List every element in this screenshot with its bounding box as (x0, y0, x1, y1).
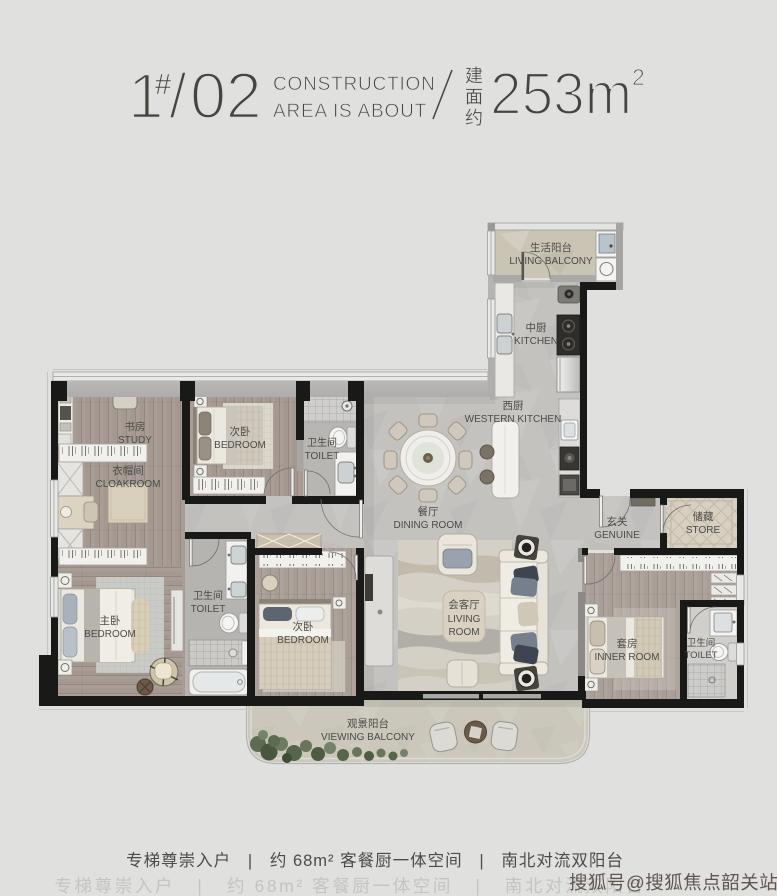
svg-text:套房: 套房 (617, 637, 638, 650)
svg-text:GENUINE: GENUINE (594, 530, 640, 541)
svg-text:ROOM: ROOM (448, 627, 479, 638)
svg-text:观景阳台: 观景阳台 (347, 717, 389, 730)
svg-text:西厨: 西厨 (503, 400, 524, 412)
svg-text:TOILET: TOILET (684, 650, 717, 661)
svg-text:WESTERN KITCHEN: WESTERN KITCHEN (465, 414, 562, 425)
svg-text:会客厅: 会客厅 (448, 598, 480, 611)
svg-text:BEDROOM: BEDROOM (214, 440, 266, 451)
svg-text:餐厅: 餐厅 (418, 505, 439, 518)
svg-text:卫生间: 卫生间 (193, 589, 223, 602)
svg-text:次卧: 次卧 (230, 425, 251, 438)
svg-text:中厨: 中厨 (526, 321, 547, 334)
svg-text:专梯尊崇入户 | 约 68m² 客餐厨一体空间: 专梯尊崇入户 | 约 68m² 客餐厨一体空间 | 南北对流双阳台 (54, 876, 645, 896)
svg-text:DINING ROOM: DINING ROOM (394, 520, 463, 531)
svg-text:BEDROOM: BEDROOM (277, 635, 329, 646)
svg-text:LIVING BALCONY: LIVING BALCONY (509, 256, 593, 267)
svg-text:面: 面 (465, 87, 483, 107)
svg-text:储藏: 储藏 (693, 510, 714, 523)
svg-text:253m: 253m (490, 61, 632, 127)
svg-text:书房: 书房 (125, 420, 146, 433)
svg-text:专梯尊崇入户 | 约 68m² 客餐厨一体空间: 专梯尊崇入户 | 约 68m² 客餐厨一体空间 | 南北对流双阳台 (126, 851, 624, 870)
svg-text:生活阳台: 生活阳台 (530, 241, 572, 254)
svg-text:主卧: 主卧 (100, 614, 121, 627)
svg-text:02: 02 (190, 59, 261, 132)
svg-text:玄关: 玄关 (607, 515, 628, 528)
svg-text:次卧: 次卧 (293, 620, 314, 633)
svg-text:STORE: STORE (686, 525, 721, 536)
svg-text:2: 2 (632, 64, 645, 90)
svg-text:约: 约 (465, 108, 483, 128)
svg-text:搜狐号@搜狐焦点韶关站: 搜狐号@搜狐焦点韶关站 (569, 872, 777, 893)
svg-text:CONSTRUCTION: CONSTRUCTION (273, 74, 436, 95)
svg-text:TOILET: TOILET (305, 451, 340, 462)
svg-text:衣帽间: 衣帽间 (112, 464, 144, 477)
svg-text:卫生间: 卫生间 (687, 637, 716, 649)
svg-text:LIVING: LIVING (448, 614, 481, 625)
svg-text:STUDY: STUDY (118, 435, 152, 446)
svg-text:VIEWING BALCONY: VIEWING BALCONY (321, 732, 415, 743)
svg-text:TOILET: TOILET (191, 604, 226, 615)
svg-text:CLOAKROOM: CLOAKROOM (95, 479, 160, 490)
svg-text:/: / (169, 60, 187, 132)
svg-text:BEDROOM: BEDROOM (84, 629, 136, 640)
svg-text:AREA IS ABOUT: AREA IS ABOUT (273, 101, 427, 122)
svg-text:INNER ROOM: INNER ROOM (595, 652, 660, 663)
svg-text:建: 建 (465, 66, 483, 86)
svg-text:KITCHEN: KITCHEN (514, 336, 558, 347)
svg-text:卫生间: 卫生间 (307, 436, 337, 449)
